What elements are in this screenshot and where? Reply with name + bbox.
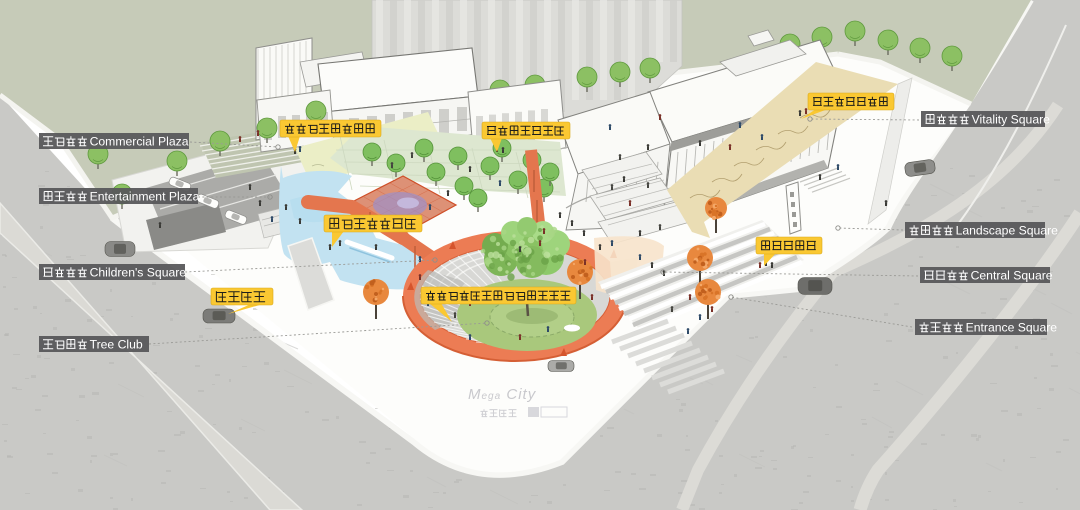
svg-text:Central Square: Central Square <box>971 269 1053 283</box>
svg-text:Vitality Square: Vitality Square <box>972 113 1051 127</box>
svg-text:Mega City: Mega City <box>468 386 537 403</box>
svg-text:Tree Club: Tree Club <box>90 338 143 352</box>
svg-text:Children's Square: Children's Square <box>90 266 187 280</box>
svg-text:Commercial Plaza: Commercial Plaza <box>90 135 189 149</box>
svg-text:Landscape Square: Landscape Square <box>956 224 1059 238</box>
svg-text:Entertainment Plaza: Entertainment Plaza <box>90 190 200 204</box>
svg-text:Entrance Square: Entrance Square <box>966 321 1058 335</box>
